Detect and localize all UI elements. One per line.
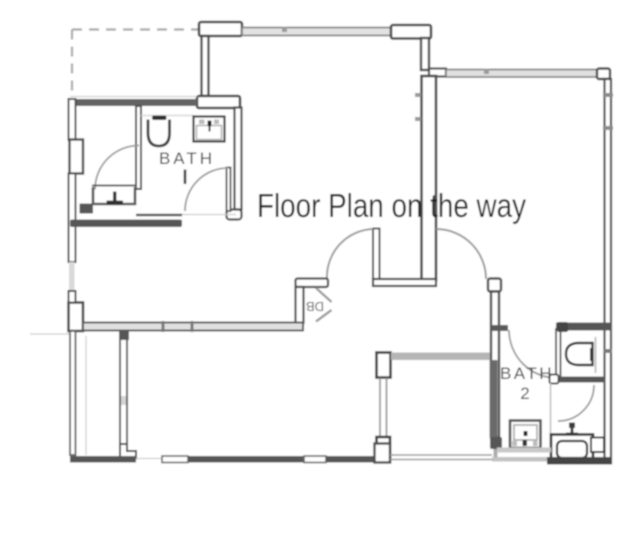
svg-text:BATH: BATH xyxy=(159,149,215,168)
svg-text:DB: DB xyxy=(306,299,324,314)
svg-text:BATH: BATH xyxy=(500,364,554,383)
svg-text:Floor Plan on the way: Floor Plan on the way xyxy=(257,187,526,224)
svg-text:2: 2 xyxy=(520,384,529,403)
